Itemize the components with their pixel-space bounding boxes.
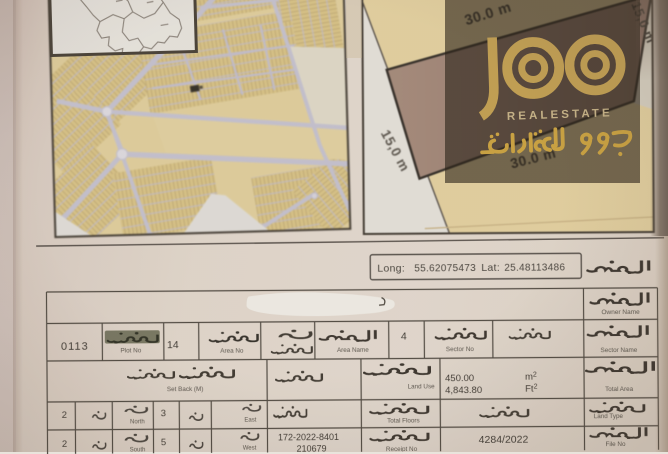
svg-text:Sector Name: Sector Name (600, 347, 637, 354)
svg-text:Area Name: Area Name (337, 347, 369, 354)
svg-text:Land Type: Land Type (594, 413, 624, 420)
svg-text:4,843.80: 4,843.80 (445, 385, 482, 396)
svg-text:Owner Name: Owner Name (601, 309, 640, 316)
svg-text:4: 4 (401, 330, 407, 342)
svg-text:East: East (244, 418, 256, 424)
svg-text:Lat:: Lat: (481, 262, 500, 274)
svg-text:5: 5 (161, 437, 166, 448)
svg-text:Land Use: Land Use (408, 383, 436, 390)
svg-text:Receipt No: Receipt No (386, 446, 418, 453)
svg-text:4284/2022: 4284/2022 (479, 434, 529, 446)
svg-text:2: 2 (62, 439, 67, 450)
svg-text:0113: 0113 (61, 341, 89, 353)
svg-text:Long:: Long: (377, 263, 405, 275)
svg-text:File No: File No (606, 441, 626, 448)
svg-text:m2: m2 (525, 372, 537, 383)
svg-text:Area No: Area No (220, 348, 244, 355)
svg-text:Total Floors: Total Floors (387, 417, 420, 424)
svg-text:Plot No: Plot No (121, 347, 142, 354)
svg-text:Sector No: Sector No (446, 346, 475, 353)
svg-text:3: 3 (161, 408, 166, 419)
svg-text:25.48113486: 25.48113486 (504, 262, 565, 273)
svg-text:210679: 210679 (296, 444, 326, 454)
svg-text:14: 14 (167, 339, 179, 351)
svg-text:450.00: 450.00 (445, 373, 474, 384)
svg-text:55.62075473: 55.62075473 (414, 263, 476, 274)
svg-text:Ft2: Ft2 (525, 384, 538, 395)
svg-text:Total Area: Total Area (605, 386, 634, 393)
svg-text:North: North (130, 419, 145, 425)
svg-text:2: 2 (62, 410, 67, 421)
svg-text:West: West (243, 446, 257, 452)
svg-text:South: South (130, 447, 146, 453)
svg-text:Set Back (M): Set Back (M) (167, 386, 203, 393)
svg-text:172-2022-8401: 172-2022-8401 (278, 432, 339, 442)
